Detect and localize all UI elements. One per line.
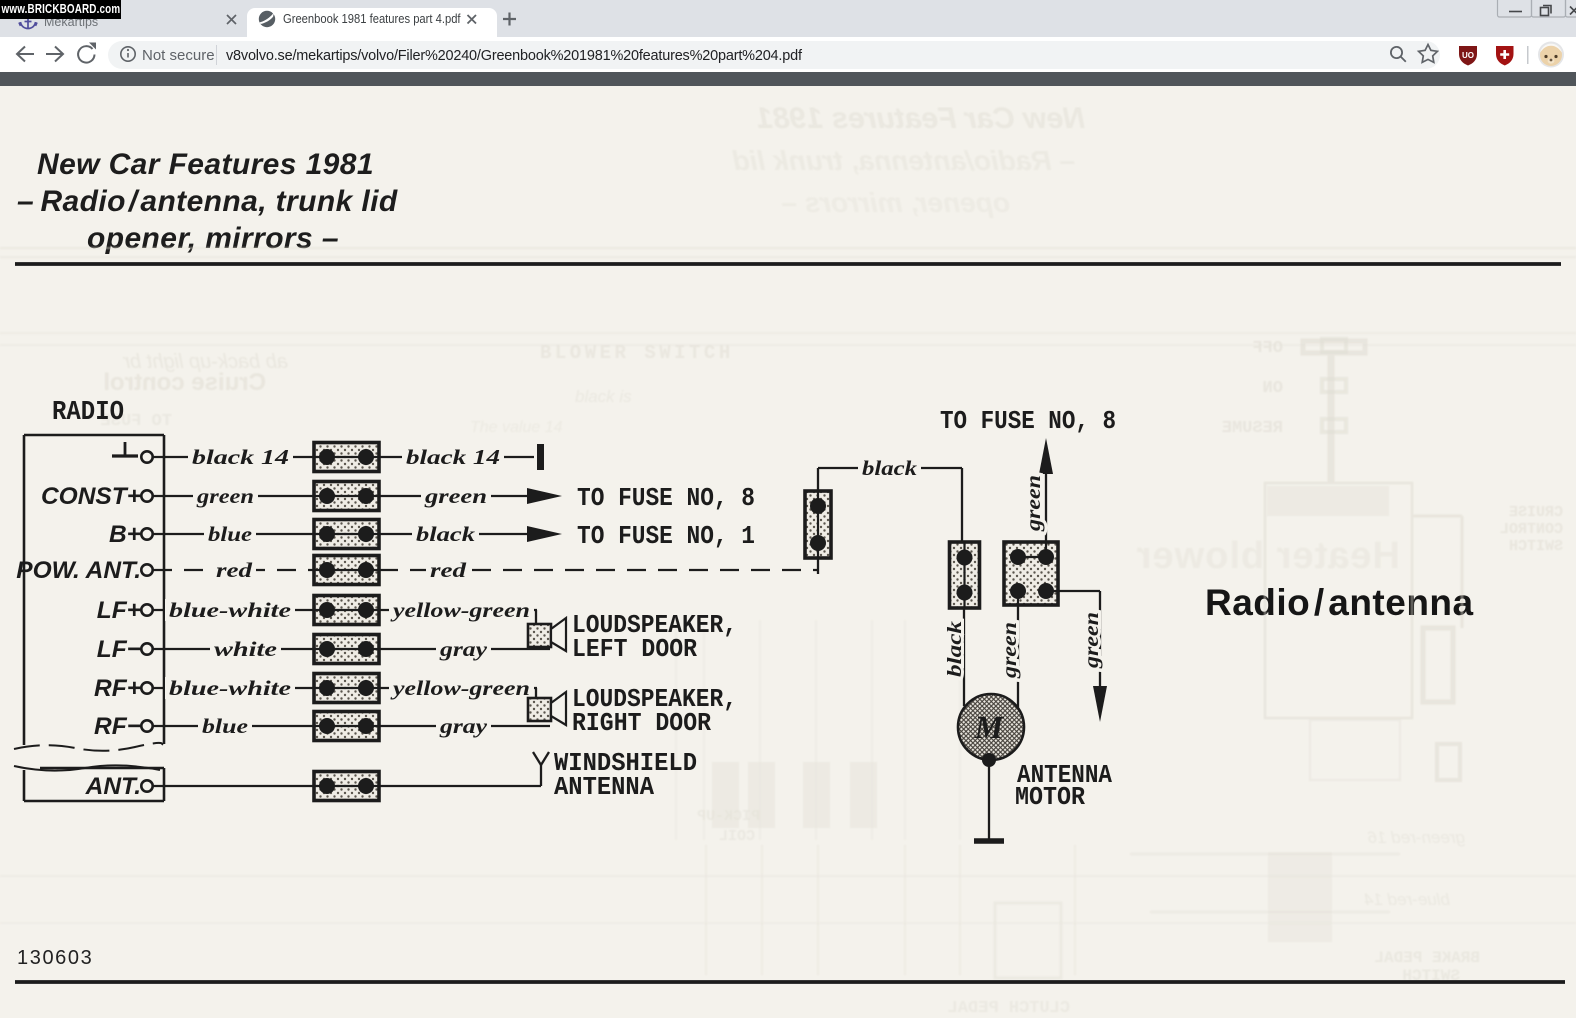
svg-text:BLOWER SWITCH: BLOWER SWITCH: [540, 342, 734, 364]
svg-text:green: green: [424, 484, 487, 508]
svg-text:green: green: [1023, 475, 1045, 532]
svg-text:red: red: [216, 558, 254, 582]
svg-text:TO FUSE NO, 8: TO FUSE NO, 8: [940, 406, 1116, 436]
svg-text:BRAKE PEDAL: BRAKE PEDAL: [1374, 949, 1480, 967]
svg-text:LEFT DOOR: LEFT DOOR: [572, 634, 697, 664]
svg-text:gray: gray: [439, 714, 488, 738]
svg-text:POW. ANT.: POW. ANT.: [16, 557, 141, 584]
svg-text:CLUTCH PEDAL: CLUTCH PEDAL: [948, 999, 1070, 1018]
svg-text:RF+: RF+: [94, 675, 141, 702]
svg-text:Cruise control: Cruise control: [103, 369, 266, 396]
svg-text:RIGHT DOOR: RIGHT DOOR: [572, 708, 711, 738]
svg-text:LF−: LF−: [97, 636, 141, 663]
svg-text:OFF: OFF: [1252, 339, 1283, 358]
svg-text:black 14: black 14: [192, 445, 289, 469]
svg-text:LF+: LF+: [97, 597, 141, 624]
svg-text:green: green: [999, 622, 1021, 679]
svg-text:green: green: [196, 484, 254, 508]
svg-text:New Car Features 1981: New Car Features 1981: [756, 102, 1085, 135]
svg-text:blue-white: blue-white: [169, 598, 292, 622]
svg-text:CONTROL: CONTROL: [1500, 521, 1563, 538]
svg-text:blue: blue: [202, 714, 249, 738]
svg-text:B+: B+: [109, 521, 141, 548]
svg-text:SWITCH: SWITCH: [1509, 538, 1563, 555]
svg-text:COIL: COIL: [719, 828, 755, 845]
svg-text:white: white: [214, 637, 278, 661]
svg-text:green-red 16: green-red 16: [1367, 828, 1465, 847]
svg-text:– Radio/antenna, trunk lid: – Radio/antenna, trunk lid: [732, 145, 1075, 176]
svg-text:UO: UO: [1462, 51, 1474, 60]
svg-text:The value 14: The value 14: [470, 419, 563, 436]
svg-text:MOTOR: MOTOR: [1015, 782, 1085, 812]
svg-text:opener, mirrors –: opener, mirrors –: [781, 187, 1010, 218]
svg-text:ON: ON: [1263, 379, 1283, 398]
svg-text:blue-red 14: blue-red 14: [1364, 890, 1450, 909]
svg-text:CONST+: CONST+: [41, 483, 141, 510]
svg-text:TO FUSE NO, 8: TO FUSE NO, 8: [577, 483, 755, 513]
svg-text:ANTENNA: ANTENNA: [554, 772, 654, 802]
svg-text:red: red: [430, 558, 468, 582]
svg-text:green: green: [1081, 612, 1103, 669]
svg-text:black: black: [944, 621, 966, 677]
svg-text:black: black: [862, 456, 917, 480]
svg-text:yellow-green: yellow-green: [389, 598, 530, 622]
svg-text:RF−: RF−: [94, 713, 141, 740]
svg-text:black: black: [416, 522, 475, 546]
svg-text:gray: gray: [439, 637, 488, 661]
svg-text:Heater blower: Heater blower: [1136, 535, 1400, 577]
svg-text:RADIO: RADIO: [52, 398, 124, 428]
svg-text:black 14: black 14: [406, 445, 500, 469]
svg-text:ANT.: ANT.: [85, 773, 141, 800]
svg-text:CRUISE: CRUISE: [1509, 504, 1563, 521]
svg-text:yellow-green: yellow-green: [389, 676, 530, 700]
svg-text:M: M: [974, 709, 1005, 745]
svg-text:blue: blue: [208, 522, 253, 546]
svg-text:blue-white: blue-white: [169, 676, 292, 700]
svg-text:RESUME: RESUME: [1222, 419, 1283, 438]
svg-text:PICK-UP: PICK-UP: [697, 808, 760, 825]
svg-text:TO FUSE NO, 1: TO FUSE NO, 1: [577, 521, 755, 551]
svg-text:black is: black is: [575, 387, 632, 406]
